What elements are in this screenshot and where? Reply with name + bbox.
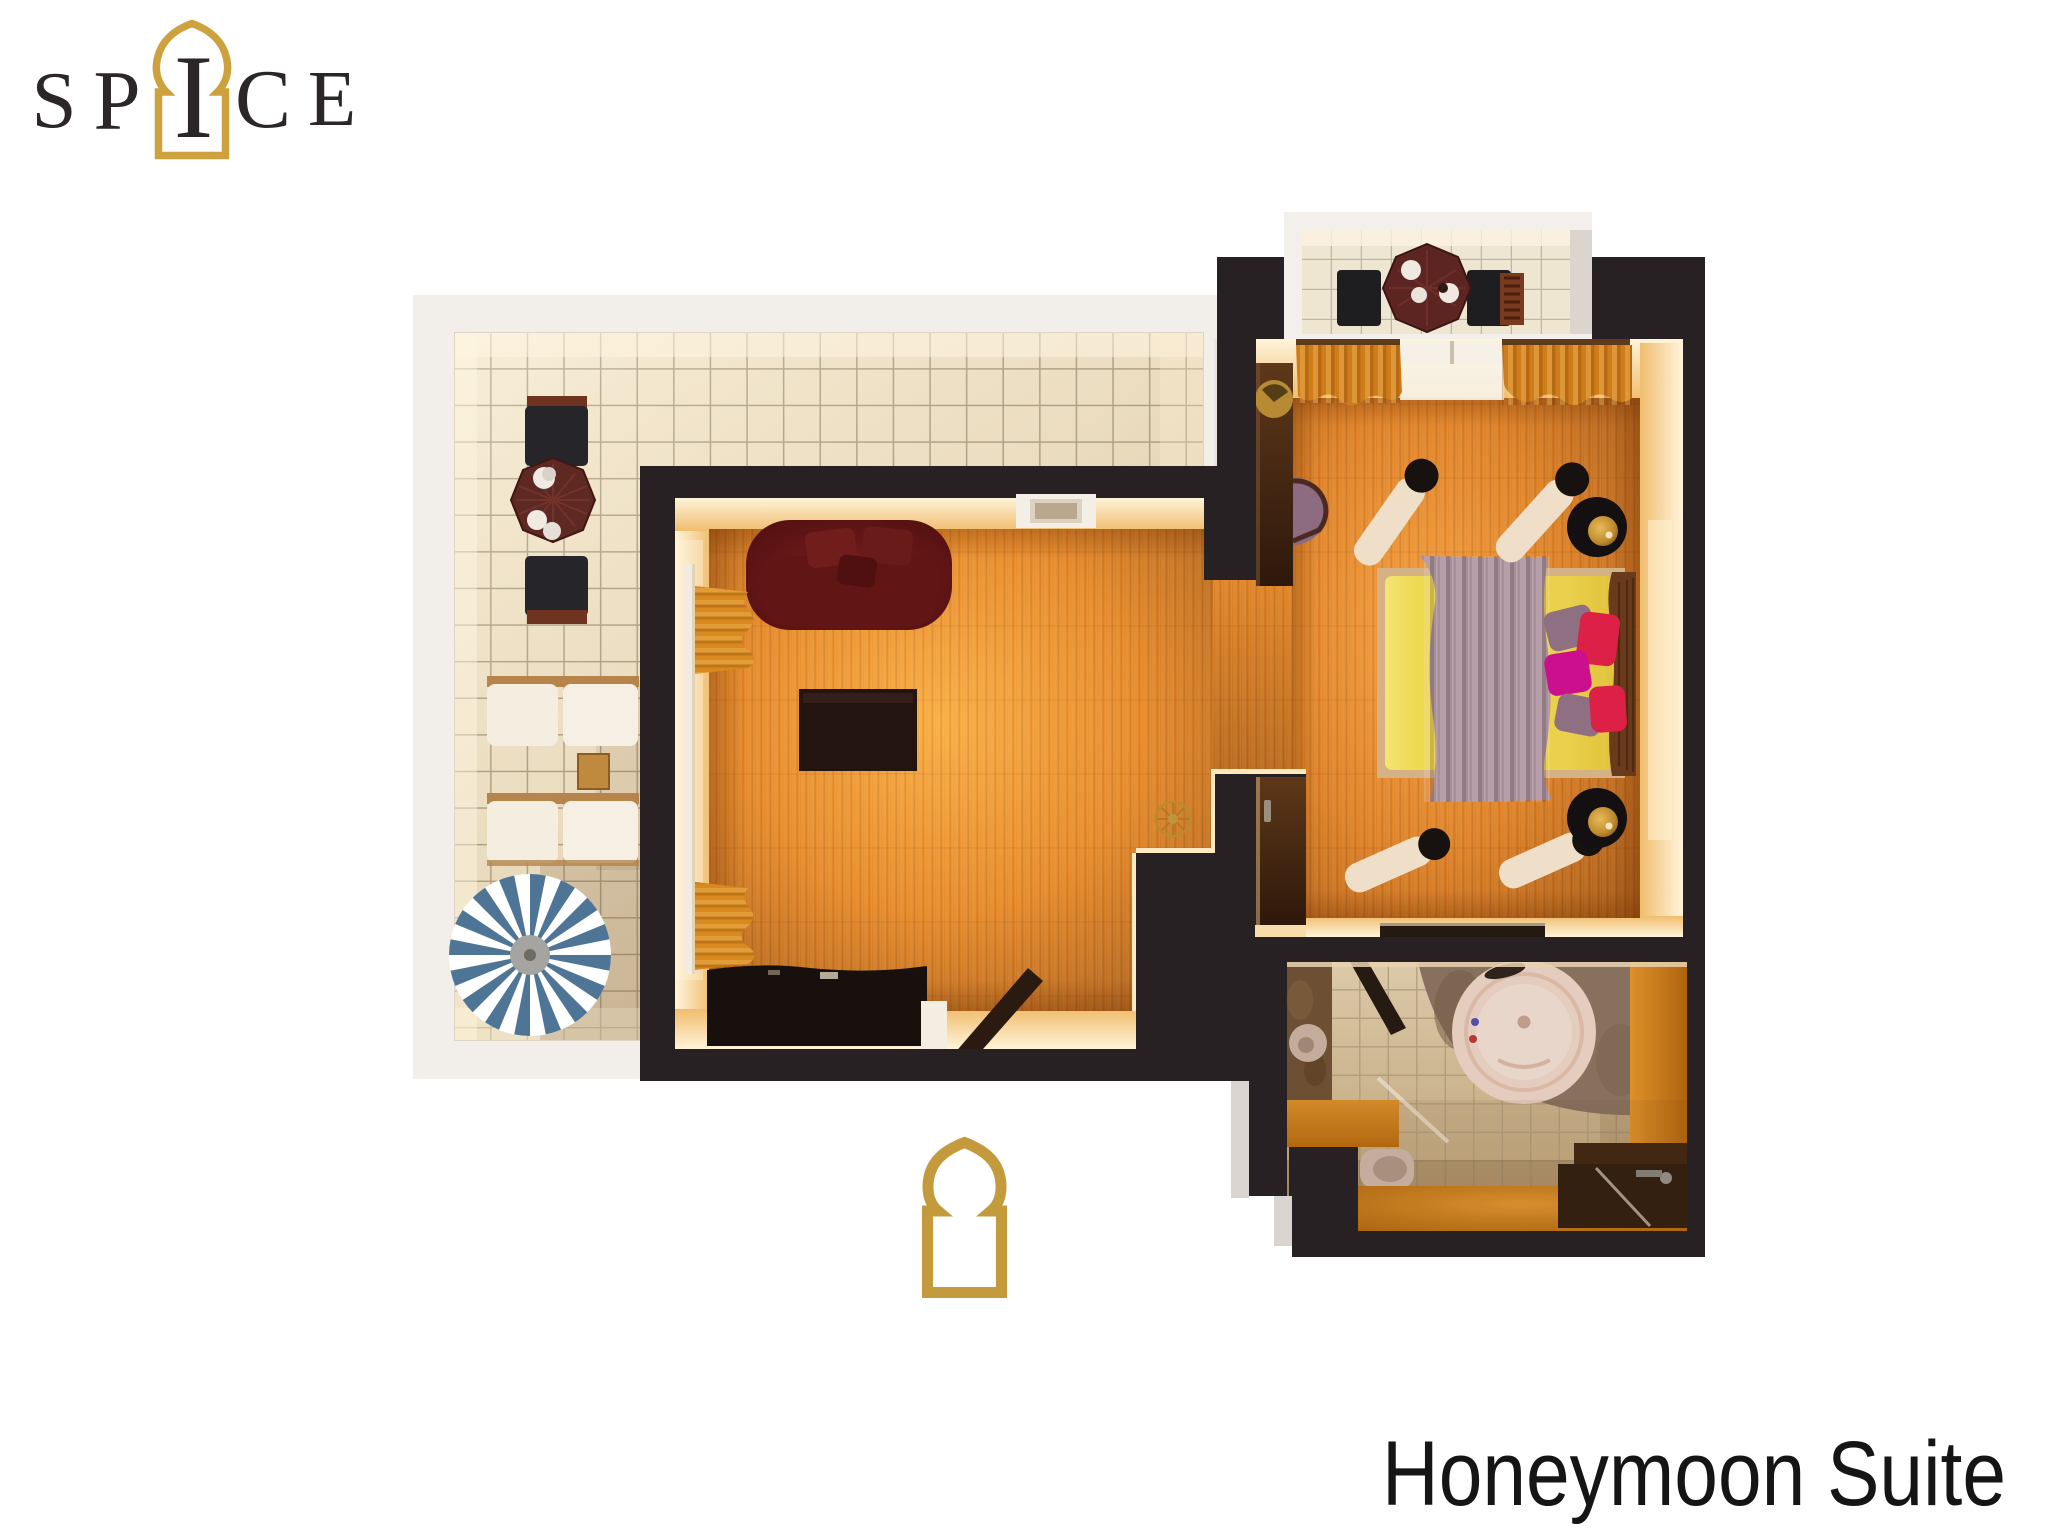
- svg-text:S: S: [31, 55, 76, 145]
- svg-text:I: I: [174, 30, 214, 163]
- svg-text:Honeymoon Suite: Honeymoon Suite: [1382, 1423, 2006, 1525]
- svg-text:P: P: [93, 54, 140, 148]
- svg-text:C: C: [235, 53, 291, 146]
- svg-text:E: E: [308, 56, 356, 143]
